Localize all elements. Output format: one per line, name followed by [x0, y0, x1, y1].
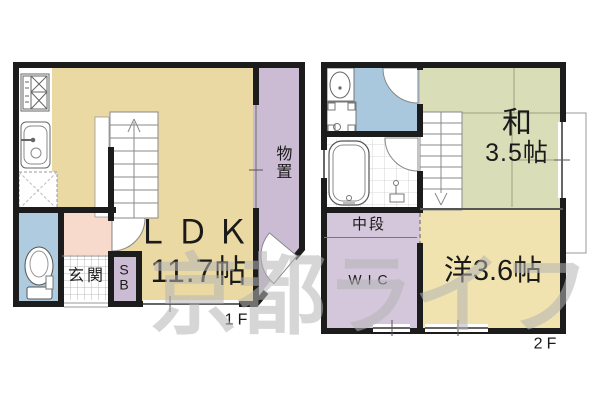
toilet-icon: [25, 247, 53, 299]
japanese-room-name: 和: [485, 108, 549, 140]
eaves-line: [566, 113, 586, 253]
washing-machine-icon: [327, 102, 356, 133]
floorplan-drawing: [0, 0, 600, 400]
shoe-box-line1: S: [119, 262, 128, 277]
ldk-room-label: ＬＤＫ: [136, 216, 256, 251]
wic-label: WIC: [348, 273, 393, 288]
western-room-label: 洋3.6帖: [444, 256, 542, 286]
chudan-label: 中段: [352, 217, 386, 233]
washbasin-icon: [327, 68, 354, 101]
stairs-1f: [95, 112, 158, 218]
stove-icon: [21, 74, 49, 111]
bathtub-icon: [329, 141, 369, 205]
japanese-room-size: 3.5帖: [485, 140, 549, 166]
entrance-label: 玄関: [68, 269, 106, 286]
floor2-label: 2F: [534, 337, 561, 354]
shoe-box-line2: B: [119, 277, 128, 292]
floorplan-page: { "watermark": "京都ライフ", "floor1": { "flo…: [0, 0, 600, 400]
storage-label: 物置: [273, 145, 290, 181]
ldk-size-label: 11.7帖: [151, 255, 248, 289]
sink-icon: [21, 122, 50, 168]
shoe-box-label: S B: [119, 262, 128, 291]
floor1-label: 1F: [225, 313, 252, 330]
japanese-room-label: 和 3.5帖: [485, 108, 549, 166]
refrigerator-space: [19, 172, 57, 209]
stairs-2f: [420, 112, 462, 210]
